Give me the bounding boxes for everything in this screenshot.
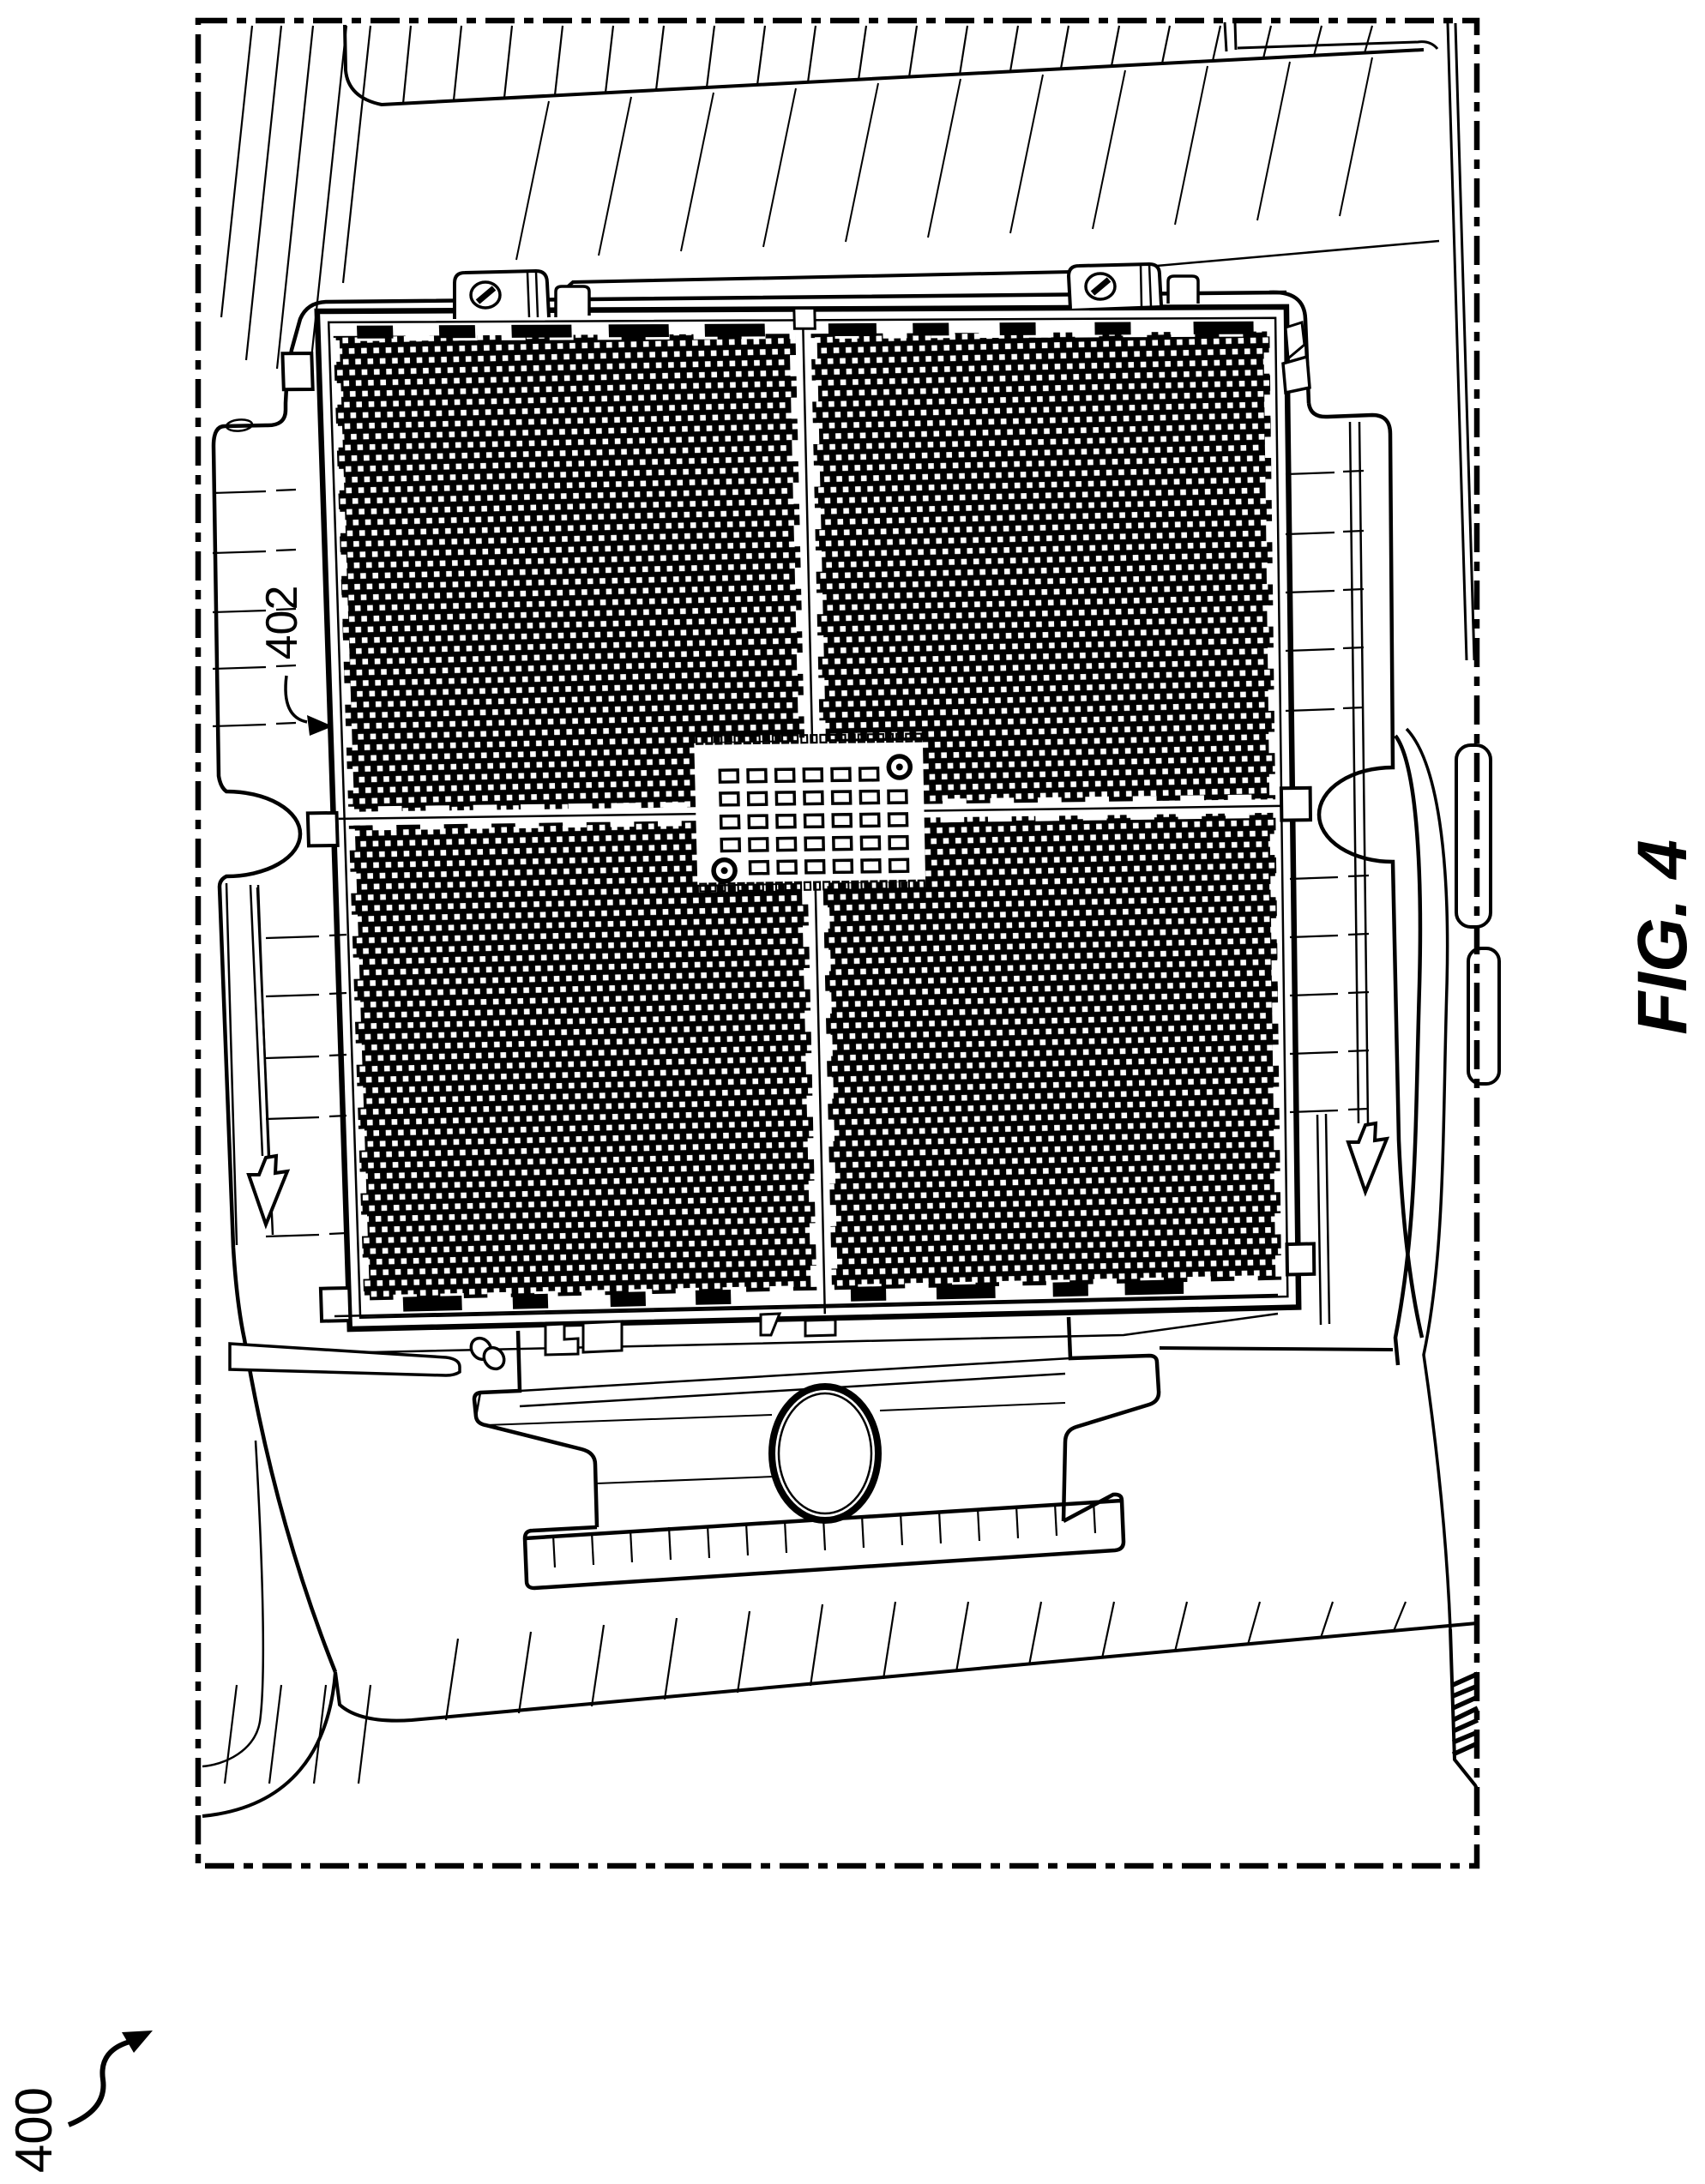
svg-text:402: 402 bbox=[257, 586, 307, 660]
svg-text:FIG. 4: FIG. 4 bbox=[1624, 839, 1702, 1035]
svg-text:400: 400 bbox=[5, 2087, 63, 2173]
